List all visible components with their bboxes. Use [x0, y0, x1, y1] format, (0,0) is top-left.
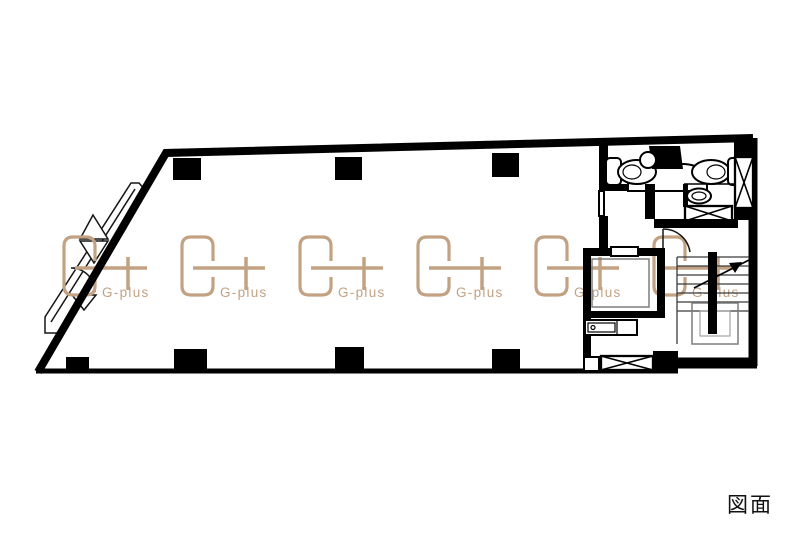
corner-column	[653, 351, 678, 373]
watermark-label: G-plus	[220, 285, 268, 300]
sink-basin-icon	[640, 152, 656, 168]
watermark-logo: G-plus	[654, 237, 740, 300]
watermark-label: G-plus	[102, 285, 150, 300]
urinal-icon	[687, 189, 711, 204]
column-pillar	[174, 349, 207, 370]
watermark-logo: G-plus	[300, 237, 386, 300]
panel-box	[585, 320, 637, 335]
watermark-logo: G-plus	[182, 237, 268, 300]
column-pillar	[335, 157, 362, 180]
elevator-shaft-wall	[657, 248, 665, 318]
drawing-type-label: 図面	[727, 494, 773, 517]
urinal-bowl	[687, 189, 711, 204]
stair-core-wall	[708, 252, 717, 334]
white-column	[584, 357, 599, 371]
staircase-area	[677, 252, 751, 344]
watermark-logo: G-plus	[536, 237, 622, 300]
service-area	[584, 351, 678, 373]
corner-block	[734, 142, 754, 156]
column-pillar	[66, 357, 89, 371]
restroom-wall	[734, 208, 754, 220]
watermark-label: G-plus	[338, 285, 386, 300]
floor-plan-drawing: G-plus G-plus G-plus G-plus G-plus G-plu…	[0, 0, 800, 534]
corridor-wall	[654, 219, 738, 228]
watermark-label: G-plus	[574, 285, 622, 300]
column-pillar	[335, 347, 364, 370]
pipe-shaft-xbox	[735, 157, 753, 208]
door-leaf	[599, 191, 604, 216]
pipe-shaft-xbox	[685, 206, 732, 221]
lobby-wall	[583, 248, 591, 360]
column-pillar	[173, 158, 201, 180]
stall-partition	[645, 184, 655, 219]
elevator-shaft-wall	[583, 311, 665, 318]
column-pillar	[492, 349, 520, 370]
floor-plan-page: G-plus G-plus G-plus G-plus G-plus G-plu…	[0, 0, 800, 534]
toilet-bowl	[692, 160, 730, 184]
restroom-area	[599, 142, 754, 256]
elevator-door	[611, 247, 638, 256]
duct-xbox	[601, 356, 653, 370]
elevator-panel	[585, 320, 637, 335]
watermark-label: G-plus	[456, 285, 504, 300]
column-pillar	[492, 153, 519, 177]
watermark-logo: G-plus	[418, 237, 504, 300]
